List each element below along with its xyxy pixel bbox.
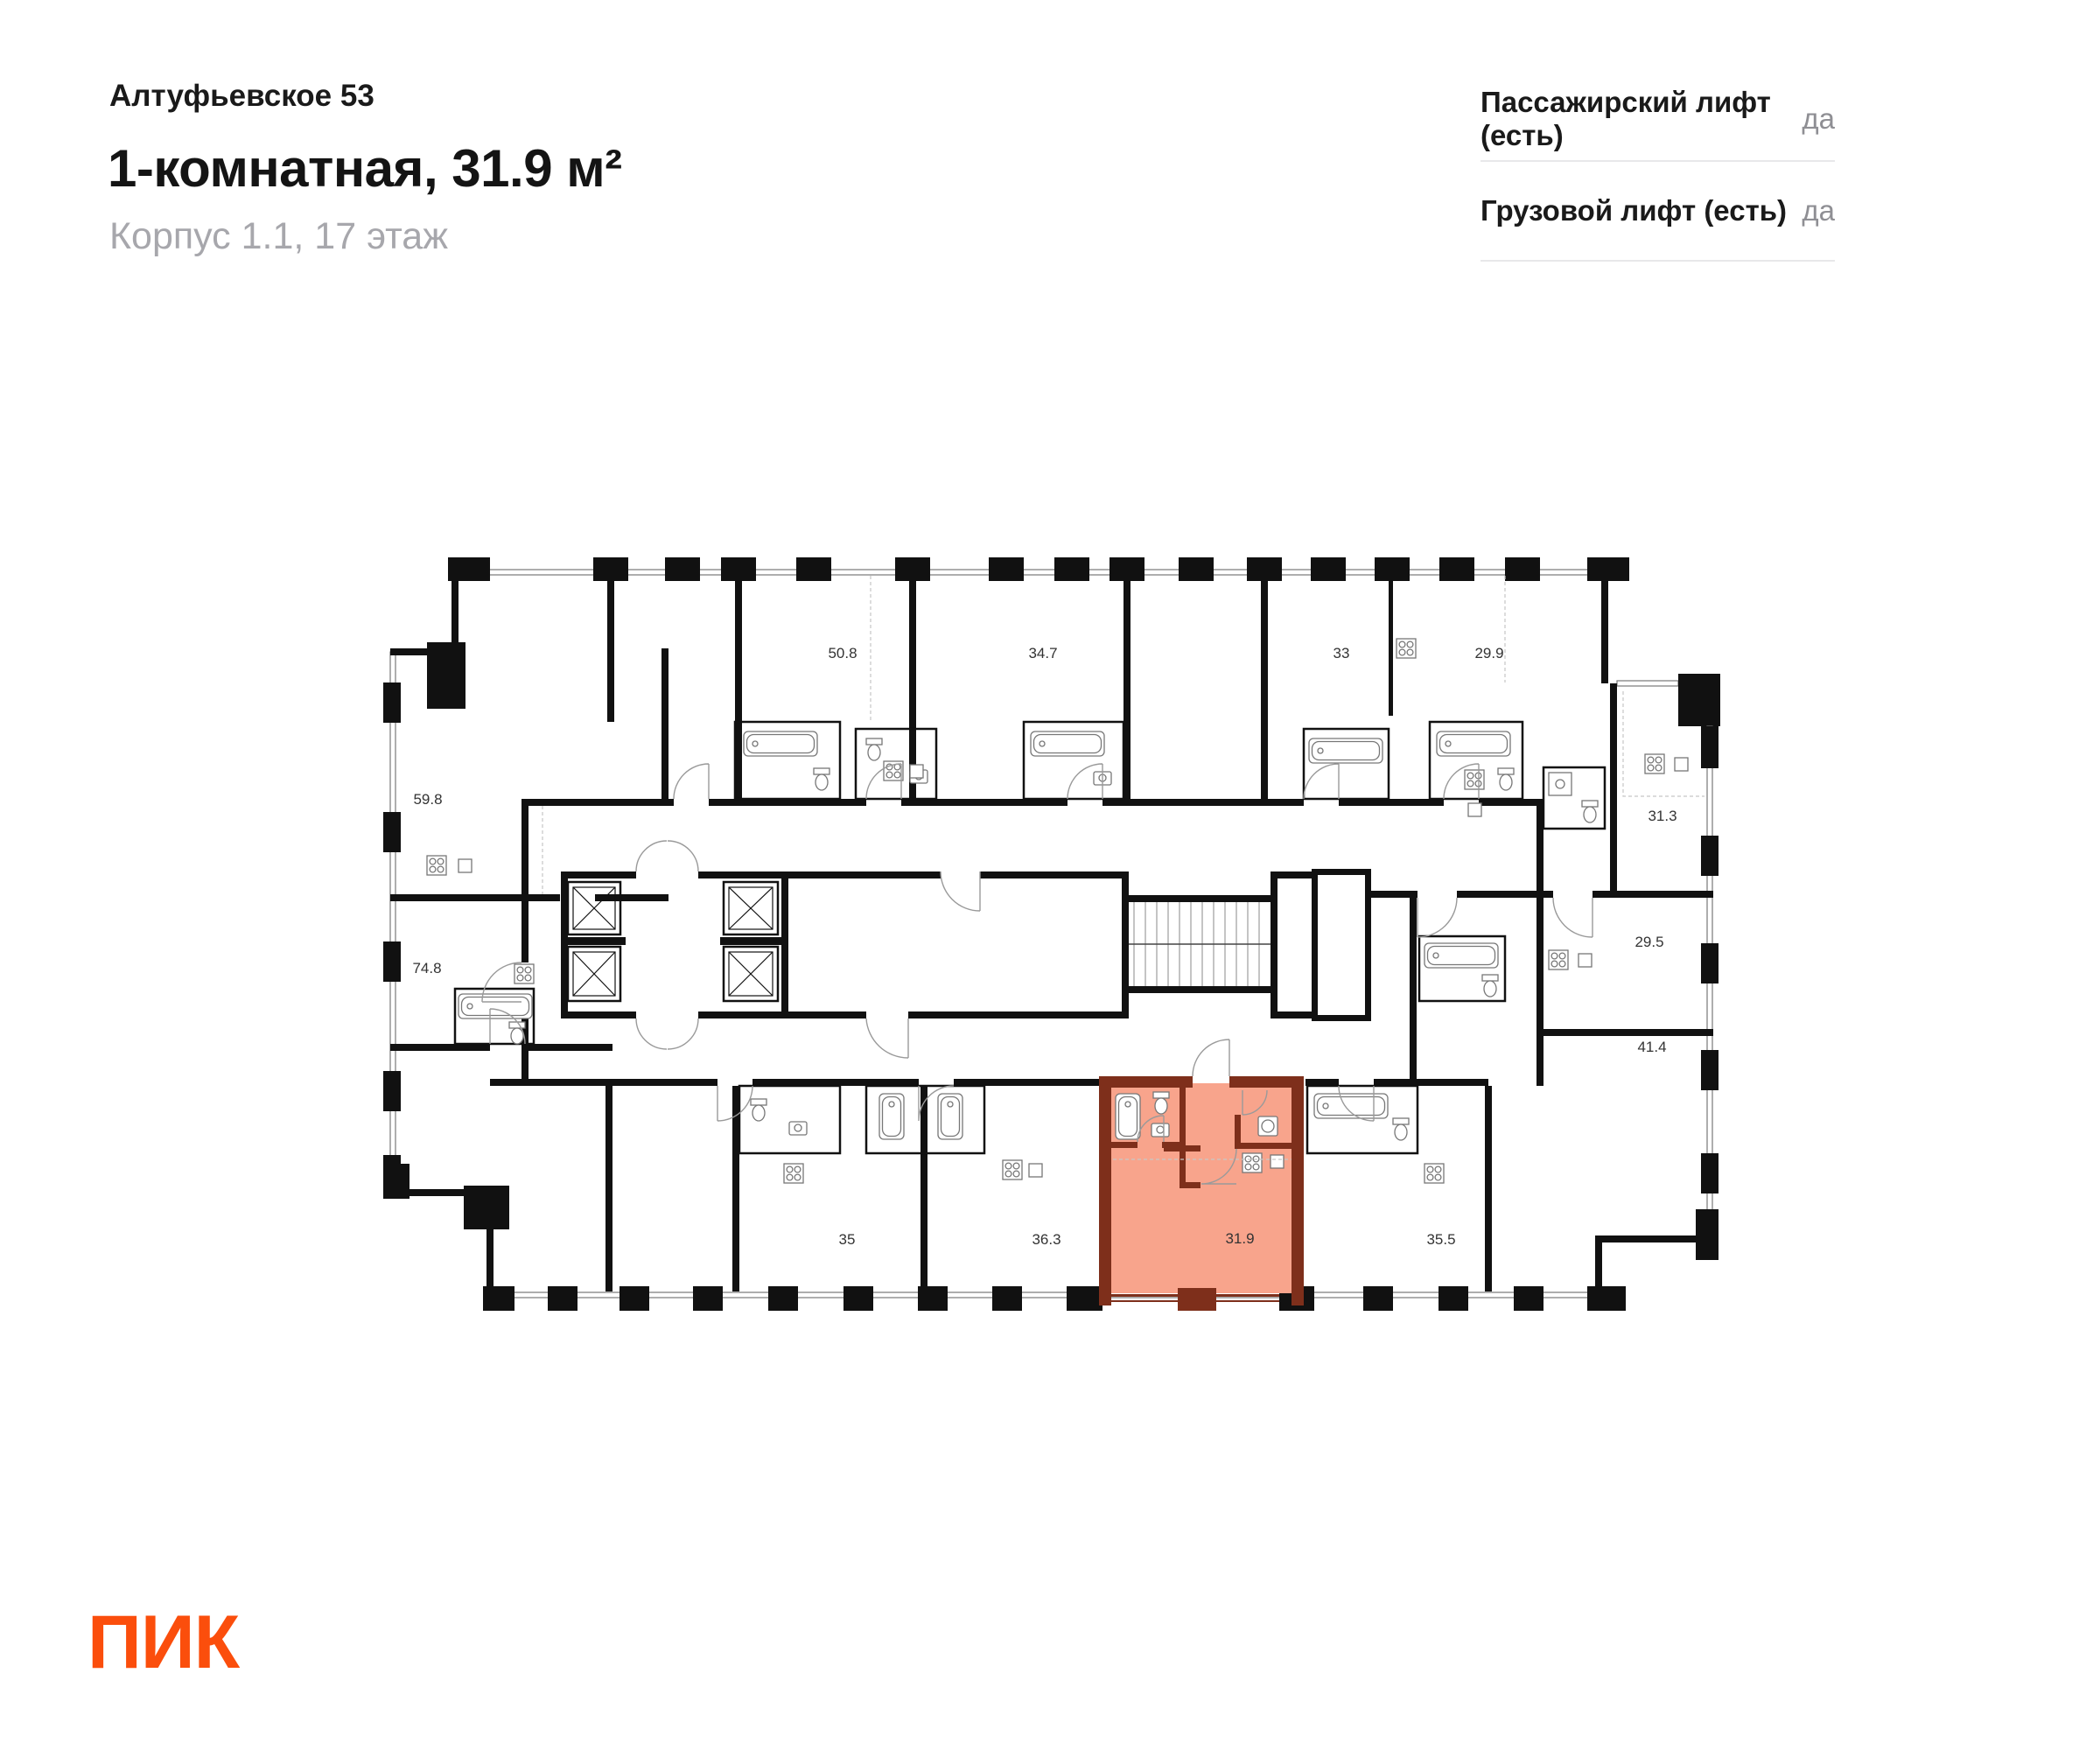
- toilet-icon: [751, 1099, 766, 1121]
- lift-value: да: [1802, 194, 1835, 227]
- stove-icon: [427, 856, 446, 875]
- kitchen-sink-icon: [1578, 954, 1592, 967]
- toilet-icon: [866, 738, 882, 760]
- area-label-29-5: 29.5: [1634, 934, 1663, 950]
- bathtub-icon: [458, 994, 532, 1018]
- kitchen-sink-icon: [1675, 758, 1688, 771]
- stove-icon: [1003, 1160, 1022, 1179]
- area-label-59-8: 59.8: [413, 791, 442, 808]
- area-label-36-3: 36.3: [1032, 1231, 1060, 1248]
- selected-apartment[interactable]: 31.9: [1099, 1039, 1304, 1311]
- area-label-34-7: 34.7: [1028, 645, 1057, 661]
- stove-icon: [1396, 639, 1416, 658]
- area-label-50-8: 50.8: [828, 645, 857, 661]
- area-label-74-8: 74.8: [412, 960, 441, 976]
- lift-row-cargo: Грузовой лифт (есть) да: [1480, 162, 1835, 262]
- building-core: [561, 869, 1371, 1021]
- stove-icon: [1645, 754, 1664, 773]
- page-title: 1-комнатная, 31.9 м²: [108, 138, 622, 199]
- stove-icon: [1465, 770, 1484, 789]
- bathtub-icon: [1031, 731, 1104, 756]
- lift-row-passenger: Пассажирский лифт (есть) да: [1480, 77, 1835, 162]
- toilet-icon: [1393, 1118, 1409, 1140]
- stove-icon: [1424, 1164, 1444, 1183]
- area-label-41-4: 41.4: [1637, 1039, 1666, 1055]
- sink-icon: [789, 1122, 807, 1135]
- floor-plan: 31.9 59.8 50.8 34.7 33 29.9 31.3 74.8 29…: [376, 551, 1741, 1312]
- page-subtitle: Корпус 1.1, 17 этаж: [109, 215, 448, 258]
- apartment-plan-page: Алтуфьевское 53 1-комнатная, 31.9 м² Кор…: [0, 0, 2100, 1750]
- area-label-29-9: 29.9: [1474, 645, 1503, 661]
- stove-icon: [1549, 950, 1568, 969]
- door-arcs: [482, 764, 1592, 1121]
- kitchen-sink-icon: [1270, 1155, 1284, 1168]
- bathrooms-fixtures: [427, 639, 1688, 1183]
- toilet-icon: [1482, 975, 1498, 997]
- lift-info-list: Пассажирский лифт (есть) да Грузовой лиф…: [1480, 77, 1835, 262]
- sink-icon: [1151, 1123, 1169, 1137]
- toilet-icon: [1153, 1092, 1169, 1114]
- bathtub-icon: [1424, 943, 1498, 968]
- toilet-icon: [1498, 768, 1514, 790]
- stove-icon: [514, 964, 534, 983]
- bathtub-icon: [1116, 1094, 1140, 1139]
- bathtub-icon: [1437, 731, 1510, 756]
- toilet-icon: [1582, 801, 1598, 822]
- area-label-35-5: 35.5: [1426, 1231, 1455, 1248]
- area-label-31-9: 31.9: [1225, 1230, 1254, 1247]
- kitchen-sink-icon: [1468, 803, 1481, 816]
- washer-icon: [1258, 1116, 1277, 1136]
- shower-icon: [1549, 773, 1571, 795]
- project-name: Алтуфьевское 53: [109, 79, 374, 114]
- toilet-icon: [814, 768, 829, 790]
- bathtub-icon: [1314, 1094, 1388, 1118]
- area-label-33: 33: [1333, 645, 1350, 661]
- area-label-31-3: 31.3: [1648, 808, 1676, 824]
- service-shaft: [1312, 869, 1371, 1021]
- pik-logo[interactable]: ПИК: [87, 1599, 239, 1686]
- kitchen-sink-icon: [458, 859, 472, 872]
- stove-icon: [784, 1164, 803, 1183]
- lift-label: Пассажирский лифт (есть): [1480, 86, 1802, 152]
- bathtub-icon: [879, 1094, 904, 1139]
- bathtub-icon: [938, 1094, 962, 1139]
- lift-label: Грузовой лифт (есть): [1480, 194, 1787, 227]
- kitchen-sink-icon: [1029, 1164, 1042, 1177]
- stairs-icon: [1122, 895, 1277, 993]
- toilet-icon: [509, 1022, 525, 1044]
- area-label-35: 35: [839, 1231, 856, 1248]
- bathtub-icon: [744, 731, 817, 756]
- lift-value: да: [1802, 102, 1835, 136]
- bathtub-icon: [1309, 738, 1382, 763]
- stove-icon: [1242, 1153, 1262, 1172]
- kitchen-sink-icon: [910, 765, 923, 778]
